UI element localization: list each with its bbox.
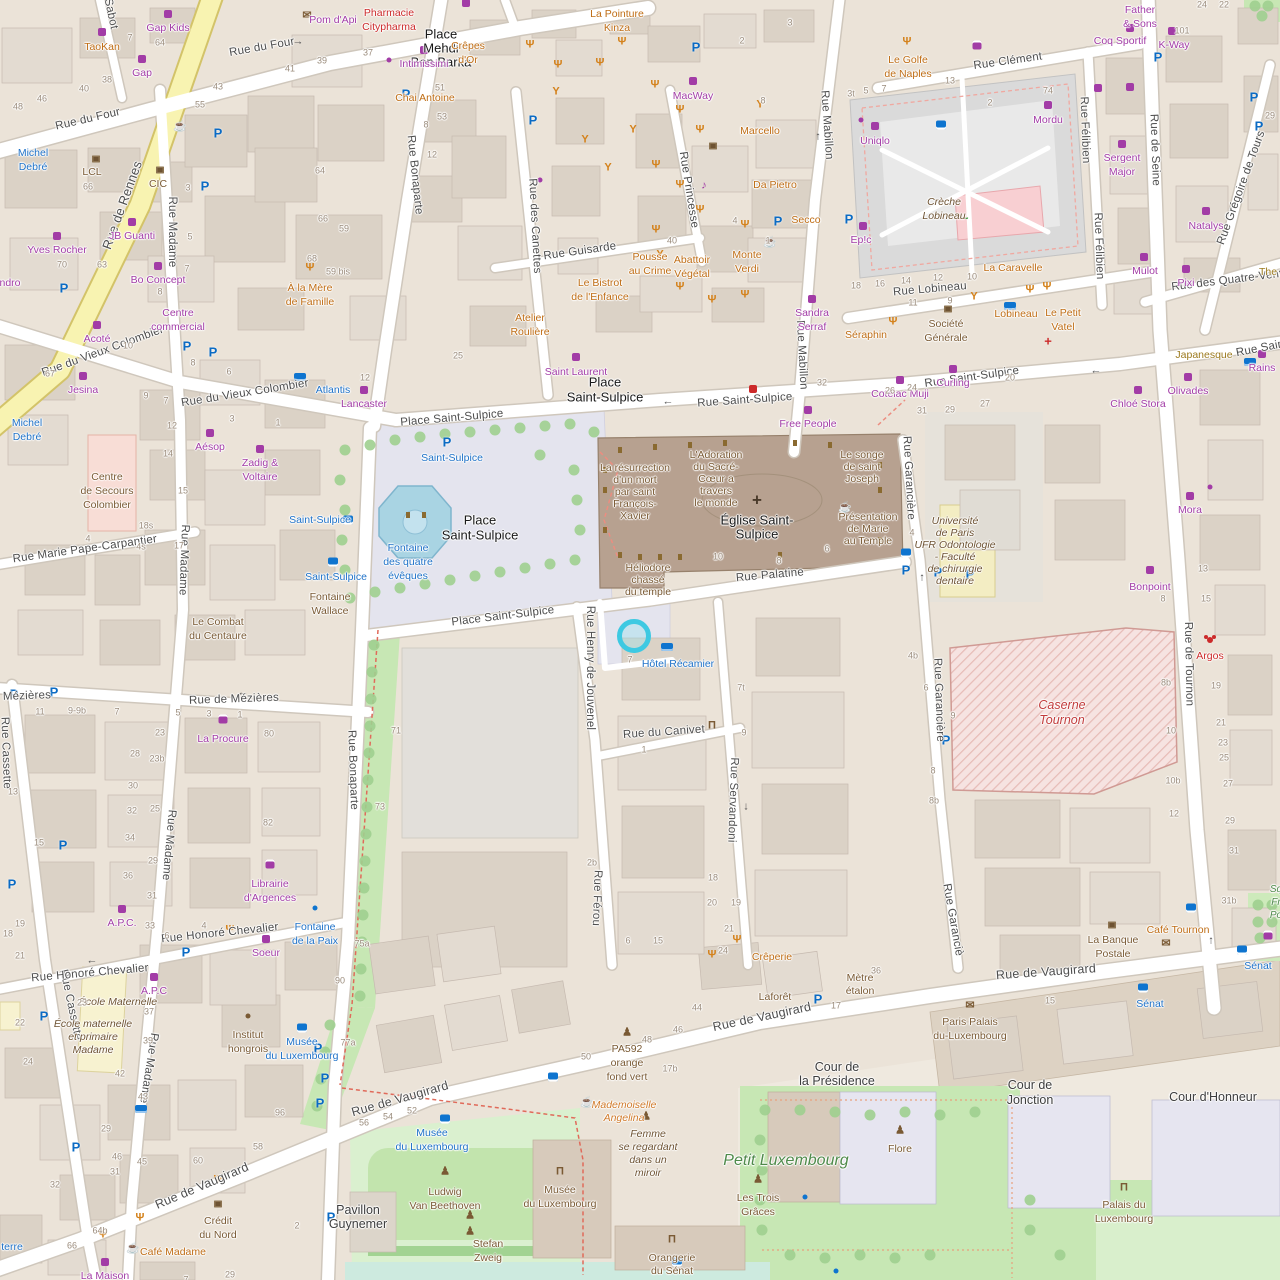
housenumber-label: 96	[275, 1109, 285, 1118]
poi-label: JB Guanti	[109, 231, 155, 242]
shop-icon[interactable]	[101, 1258, 109, 1266]
housenumber-label: 6	[226, 368, 231, 377]
poi-label: François-	[613, 499, 657, 510]
housenumber-label: 8	[157, 288, 162, 297]
restaurant-icon[interactable]: Ψ	[741, 220, 750, 231]
poi-label: Cour de	[815, 1061, 859, 1074]
housenumber-label: 31	[1229, 847, 1239, 856]
housenumber-label: 1	[641, 746, 646, 755]
restaurant-icon[interactable]: Ψ	[676, 282, 685, 293]
poi-label: Le Golfe	[888, 55, 928, 66]
restaurant-icon[interactable]: Ψ	[651, 80, 660, 91]
poi-label: de Marie	[848, 524, 889, 535]
poi-label: Roulière	[510, 327, 549, 338]
bar-icon[interactable]: Y	[604, 163, 611, 174]
tree	[390, 435, 401, 446]
poi-label: Université	[932, 516, 979, 527]
poi-label: La Pointure	[590, 9, 644, 20]
poi-label: UFR Odontologie	[914, 540, 995, 551]
museum-icon[interactable]: Π	[556, 1167, 564, 1178]
housenumber-label: 1	[237, 711, 242, 720]
poi-label: Centre	[162, 308, 194, 319]
parking-icon[interactable]: P	[59, 839, 68, 852]
tree	[520, 563, 531, 574]
tree	[865, 1110, 876, 1121]
housenumber-label: 25	[453, 352, 463, 361]
bookshop-icon[interactable]	[219, 715, 228, 724]
poi-label: Mètre	[847, 973, 874, 984]
poi-label: Stefan	[473, 1239, 503, 1250]
map-canvas[interactable]: PPPPPPPPPPPPPPPPPPPPPPPPPPPPPP✉✉✉ΠΠΠΠ♟♟♟…	[0, 0, 1280, 1280]
parking-icon[interactable]: P	[814, 993, 823, 1006]
poi-label: du temple	[625, 587, 671, 598]
restaurant-icon[interactable]: Ψ	[741, 290, 750, 301]
poi-label: Pixi	[1178, 278, 1195, 289]
parking-icon[interactable]: P	[902, 564, 911, 577]
housenumber-label: 39	[317, 57, 327, 66]
poi-label: Les Trois	[737, 1193, 780, 1204]
housenumber-label: 18s	[139, 522, 154, 531]
housenumber-label: 10	[123, 342, 133, 351]
bank-icon[interactable]	[709, 143, 717, 150]
poi-label: Mora	[1178, 505, 1202, 516]
tree	[540, 421, 551, 432]
fountain-icon[interactable]	[313, 906, 318, 911]
housenumber-label: 31	[147, 892, 157, 901]
cafe-icon[interactable]: ☕	[173, 122, 187, 133]
poi-dot-icon[interactable]	[1208, 485, 1213, 490]
shop-icon[interactable]	[1182, 265, 1190, 273]
art-shop-icon[interactable]	[246, 1014, 251, 1019]
bus-stop-icon[interactable]	[901, 549, 911, 558]
poi-label: Institut	[233, 1030, 264, 1041]
shop-icon[interactable]	[360, 386, 368, 394]
restaurant-icon[interactable]: Ψ	[708, 295, 717, 306]
poi-label: Orangerie	[649, 1253, 696, 1264]
shop-icon[interactable]	[949, 365, 957, 373]
housenumber-label: 4	[732, 217, 737, 226]
street-label: Rue Cassette	[0, 717, 12, 789]
housenumber-label: 17	[174, 542, 184, 551]
housenumber-label: 3t	[847, 90, 855, 99]
shop-icon[interactable]	[1202, 207, 1210, 215]
poi-label: au Temple	[844, 536, 892, 547]
tree	[795, 1105, 806, 1116]
housenumber-label: 32	[50, 1181, 60, 1190]
housenumber-label: 20	[1005, 374, 1015, 383]
restaurant-icon[interactable]: Ψ	[526, 40, 535, 51]
parking-icon[interactable]: P	[1250, 91, 1259, 104]
poi-label: Paris Palais	[942, 1017, 997, 1028]
poi-label: Natalys	[1188, 221, 1223, 232]
shop-icon[interactable]	[1118, 140, 1126, 148]
housenumber-label: 39	[143, 1037, 153, 1046]
housenumber-label: 3	[206, 710, 211, 719]
poi-label: Free People	[779, 419, 836, 430]
housenumber-label: 12	[427, 151, 437, 160]
bar-icon[interactable]: Y	[552, 87, 559, 98]
poi-label: Gap	[132, 68, 152, 79]
tree	[1263, 1, 1274, 12]
housenumber-label: 50	[581, 1053, 591, 1062]
parking-icon[interactable]: P	[316, 1097, 325, 1110]
shop-icon[interactable]	[128, 218, 136, 226]
shop-icon[interactable]	[154, 262, 162, 270]
housenumber-label: 29	[1225, 817, 1235, 826]
housenumber-label: 19	[15, 920, 25, 929]
housenumber-label: 29	[225, 1271, 235, 1280]
restaurant-icon[interactable]: Ψ	[554, 60, 563, 71]
housenumber-label: 2	[294, 1222, 299, 1231]
poi-label: Pavillon	[336, 1204, 380, 1217]
housenumber-label: 21	[15, 952, 25, 961]
music-shop-icon[interactable]: ♪	[701, 181, 707, 192]
chapel-mark	[603, 527, 607, 533]
chapel-mark	[678, 554, 682, 560]
poi-label: étalon	[846, 986, 875, 997]
restaurant-icon[interactable]: Ψ	[903, 37, 912, 48]
poi-label: Lobineau	[922, 211, 965, 222]
poi-label: Cœur a	[698, 474, 734, 485]
poi-label: de Naples	[884, 69, 931, 80]
kiosk-icon[interactable]	[1264, 931, 1273, 940]
parking-icon[interactable]: P	[321, 1072, 330, 1085]
restaurant-icon[interactable]: Ψ	[676, 105, 685, 116]
bank-icon[interactable]	[92, 156, 100, 163]
restaurant-icon[interactable]: Ψ	[306, 263, 315, 274]
bar-icon[interactable]: Y	[970, 292, 977, 303]
hotel-icon[interactable]	[661, 643, 673, 651]
shop-icon[interactable]	[1134, 386, 1142, 394]
fountain-icon[interactable]	[834, 1269, 839, 1274]
poi-label: Fr	[1271, 898, 1280, 908]
poi-label: Cotélac Muji	[871, 389, 929, 400]
poi-label: Hôtel Récamier	[642, 659, 714, 670]
poi-label: du Nord	[199, 1230, 236, 1241]
bookshop-icon[interactable]	[973, 41, 982, 50]
poi-label: Végétal	[674, 269, 710, 280]
poi-dot-icon[interactable]	[859, 118, 864, 123]
tree	[365, 721, 376, 732]
bank-icon[interactable]	[156, 167, 164, 174]
statue-icon[interactable]: ♟	[622, 1028, 632, 1039]
housenumber-label: 46	[37, 95, 47, 104]
parking-icon[interactable]: P	[40, 1010, 49, 1023]
parking-icon[interactable]: P	[692, 41, 701, 54]
statue-icon[interactable]: ♟	[465, 1211, 475, 1222]
housenumber-label: 6	[164, 932, 169, 941]
poi-label: Argos	[1196, 651, 1223, 662]
fountain-icon[interactable]	[803, 1195, 808, 1200]
poi-label: Aésop	[195, 442, 225, 453]
poi-label: Le Bistrot	[578, 278, 622, 289]
poi-label: Serraf	[798, 322, 827, 333]
poi-label: K-Way	[1158, 40, 1189, 51]
shop-icon[interactable]	[871, 122, 879, 130]
poi-label: Angelina	[604, 1113, 645, 1124]
poi-label: Guynemer	[329, 1218, 387, 1231]
poi-label: Van Beethoven	[409, 1201, 480, 1212]
church-cross-icon[interactable]: +	[752, 492, 762, 509]
poi-label: La Procure	[197, 734, 248, 745]
housenumber-label: 74	[1043, 87, 1053, 96]
poi-label: Chloé Stora	[1110, 399, 1165, 410]
poi-label: Da Pietro	[753, 180, 797, 191]
tree	[361, 829, 372, 840]
housenumber-label: 7t	[737, 684, 745, 693]
housenumber-label: 24	[907, 384, 917, 393]
poi-label: miroir	[635, 1168, 661, 1179]
shop-icon[interactable]	[138, 55, 146, 63]
housenumber-label: 42	[115, 1070, 125, 1079]
parking-icon[interactable]: P	[845, 213, 854, 226]
shop-icon[interactable]	[859, 222, 867, 230]
restaurant-icon[interactable]: Ψ	[733, 935, 742, 946]
pet-shop-icon[interactable]	[1207, 637, 1213, 643]
shop-icon[interactable]	[1184, 373, 1192, 381]
shop-icon[interactable]	[79, 372, 87, 380]
parking-icon[interactable]: P	[182, 946, 191, 959]
fire-hydrant-icon[interactable]	[749, 385, 757, 393]
poi-label: Fontaine	[388, 543, 429, 554]
street-label: Rue Félibien	[1077, 96, 1091, 163]
bus-stop-icon[interactable]	[297, 1024, 307, 1033]
housenumber-label: 15	[1201, 595, 1211, 604]
shop-icon[interactable]	[1186, 492, 1194, 500]
poi-label: Gap Kids	[146, 23, 189, 34]
housenumber-label: 90	[335, 977, 345, 986]
housenumber-label: 16	[875, 280, 885, 289]
tree	[465, 427, 476, 438]
housenumber-label: 37	[363, 49, 373, 58]
bus-stop-icon[interactable]	[936, 121, 946, 130]
pharmacy-icon[interactable]: +	[1044, 335, 1052, 348]
shop-icon[interactable]	[206, 429, 214, 437]
poi-label: Crêperie	[752, 952, 792, 963]
taxi-icon[interactable]	[1186, 904, 1196, 913]
museum-icon[interactable]: Π	[708, 721, 716, 732]
housenumber-label: 70	[57, 261, 67, 270]
poi-label: Acoté	[84, 334, 111, 345]
poi-label: Wallace	[312, 606, 349, 617]
street-label: Rue de Seine	[1147, 114, 1161, 186]
tree	[369, 640, 380, 651]
parking-icon[interactable]: P	[1154, 51, 1163, 64]
poi-label: travers	[700, 486, 732, 497]
shop-icon[interactable]	[896, 376, 904, 384]
poi-label: Musée	[544, 1185, 576, 1196]
shop-icon[interactable]	[93, 321, 101, 329]
restaurant-icon[interactable]: Ψ	[1026, 285, 1035, 296]
poi-label: Curling	[936, 378, 969, 389]
housenumber-label: 53	[437, 113, 447, 122]
poi-label: Sénat	[1136, 999, 1163, 1010]
restaurant-icon[interactable]: Ψ	[696, 125, 705, 136]
parking-icon[interactable]: P	[529, 114, 538, 127]
housenumber-label: 8	[423, 121, 428, 130]
parking-icon[interactable]: P	[201, 180, 210, 193]
restaurant-icon[interactable]: Ψ	[708, 950, 717, 961]
poi-label: Sergent	[1104, 153, 1141, 164]
shop-icon[interactable]	[1094, 84, 1102, 92]
tree	[470, 571, 481, 582]
poi-label: Cour de	[1008, 1079, 1052, 1092]
statue-icon[interactable]: ♟	[895, 1126, 905, 1137]
shop-icon[interactable]	[572, 353, 580, 361]
tree	[589, 427, 600, 438]
shop-icon[interactable]	[98, 28, 106, 36]
housenumber-label: 41	[285, 65, 295, 74]
housenumber-label: 18	[851, 282, 861, 291]
chapel-mark	[878, 487, 882, 493]
chapel-mark	[658, 554, 662, 560]
parking-icon[interactable]: P	[60, 282, 69, 295]
poi-label: Le Petit	[1045, 308, 1081, 319]
poi-label: Sandra	[795, 308, 829, 319]
tree	[935, 1110, 946, 1121]
housenumber-label: 40	[79, 85, 89, 94]
shop-icon[interactable]	[150, 973, 158, 981]
restaurant-icon[interactable]: Ψ	[136, 1213, 145, 1224]
housenumber-label: 6	[824, 545, 829, 554]
shop-icon[interactable]	[262, 935, 270, 943]
oneway-arrow: ↑	[919, 573, 925, 584]
tree	[325, 1020, 336, 1031]
tree	[515, 423, 526, 434]
housenumber-label: 8	[760, 97, 765, 106]
bar-icon[interactable]: Y	[629, 125, 636, 136]
housenumber-label: 26	[885, 387, 895, 396]
cafe-icon[interactable]: ☕	[126, 1244, 140, 1255]
poi-label: de Paris	[936, 528, 975, 539]
restaurant-icon[interactable]: Ψ	[652, 225, 661, 236]
poi-dot-icon[interactable]	[387, 58, 392, 63]
parking-icon[interactable]: P	[209, 346, 218, 359]
street-label: Rue Madame	[165, 196, 177, 267]
bookshop-icon[interactable]	[266, 860, 275, 869]
poi-label: Place	[425, 28, 458, 41]
museum-icon[interactable]: Π	[668, 1235, 676, 1246]
housenumber-label: 68	[307, 255, 317, 264]
poi-label: La Caravelle	[984, 263, 1043, 274]
shop-icon[interactable]	[462, 0, 470, 7]
statue-icon[interactable]: ♟	[465, 1227, 475, 1238]
bank-icon[interactable]	[1108, 922, 1116, 929]
shop-icon[interactable]	[804, 406, 812, 414]
shop-icon[interactable]	[689, 77, 697, 85]
housenumber-label: 71	[391, 727, 401, 736]
housenumber-label: 8b	[1161, 679, 1171, 688]
parking-icon[interactable]: P	[774, 215, 783, 228]
parking-icon[interactable]: P	[72, 1141, 81, 1154]
restaurant-icon[interactable]: Ψ	[889, 317, 898, 328]
shop-icon[interactable]	[256, 445, 264, 453]
tree	[1250, 1, 1261, 12]
bus-stop-icon[interactable]	[328, 558, 338, 567]
shop-icon[interactable]	[118, 905, 126, 913]
restaurant-icon[interactable]: Ψ	[1043, 282, 1052, 293]
action-highlight-circle[interactable]	[617, 619, 651, 653]
poi-label: Le songe	[840, 450, 883, 461]
housenumber-label: 56	[359, 1119, 369, 1128]
bus-stop-icon[interactable]	[440, 1115, 450, 1124]
poi-label: TaoKan	[84, 42, 120, 53]
shop-icon[interactable]	[53, 232, 61, 240]
restaurant-icon[interactable]: Ψ	[618, 37, 627, 48]
bus-stop-icon[interactable]	[548, 1073, 558, 1082]
poi-label: orange	[611, 1058, 644, 1069]
housenumber-label: 24	[1197, 1, 1207, 10]
poi-label: Rains	[1249, 363, 1276, 374]
street-label: e Mézières	[0, 690, 51, 704]
poi-label: Pousse	[632, 252, 667, 263]
tree	[890, 1253, 901, 1264]
housenumber-label: 24	[718, 947, 728, 956]
poi-label: du Centaure	[189, 631, 247, 642]
post-icon[interactable]: ✉	[965, 1001, 974, 1012]
shop-icon[interactable]	[1126, 83, 1134, 91]
tree	[569, 465, 580, 476]
statue-icon[interactable]: ♟	[753, 1175, 763, 1186]
statue-icon[interactable]: ♟	[440, 1167, 450, 1178]
poi-label: Xavier	[620, 511, 650, 522]
housenumber-label: 8b	[929, 797, 939, 806]
poi-label: Flore	[888, 1144, 912, 1155]
poi-label: de Famille	[286, 297, 334, 308]
bank-icon[interactable]	[214, 1201, 222, 1208]
tree	[785, 1250, 796, 1261]
parking-icon[interactable]: P	[183, 340, 192, 353]
tree	[570, 555, 581, 566]
parking-icon[interactable]: P	[8, 878, 17, 891]
poi-label: À la Mère	[288, 283, 333, 294]
housenumber-label: 54	[383, 1113, 393, 1122]
poi-label: Vatel	[1051, 322, 1074, 333]
tree	[535, 450, 546, 461]
restaurant-icon[interactable]: Ψ	[596, 58, 605, 69]
parking-icon[interactable]: P	[214, 127, 223, 140]
bank-icon[interactable]	[944, 306, 952, 313]
parking-icon[interactable]: P	[443, 436, 452, 449]
hotel-icon[interactable]	[135, 1105, 147, 1113]
poi-label: Pom d'Api	[309, 15, 357, 26]
housenumber-label: 24	[23, 1058, 33, 1067]
shop-icon[interactable]	[1140, 253, 1148, 261]
poi-label: Séraphin	[845, 330, 887, 341]
housenumber-label: 66	[83, 183, 93, 192]
post-icon[interactable]: ✉	[1161, 939, 1170, 950]
poi-label: Crêpes	[451, 41, 485, 52]
poi-label: Fontaine	[295, 922, 336, 933]
shop-icon[interactable]	[808, 295, 816, 303]
bar-icon[interactable]: Y	[581, 135, 588, 146]
tree	[367, 667, 378, 678]
shop-icon[interactable]	[1044, 101, 1052, 109]
shop-icon[interactable]	[164, 10, 172, 18]
chapel-mark	[723, 440, 727, 446]
housenumber-label: 15	[653, 937, 663, 946]
restaurant-icon[interactable]: Ψ	[652, 160, 661, 171]
castle-icon[interactable]: Π	[1120, 1183, 1128, 1194]
bus-stop-icon[interactable]	[1138, 984, 1148, 993]
chapel-mark	[422, 512, 426, 518]
poi-label: & Sons	[1123, 19, 1157, 30]
shop-icon[interactable]	[1146, 566, 1154, 574]
poi-label: Major	[1109, 167, 1135, 178]
poi-label: Sq	[1270, 885, 1280, 895]
bus-stop-icon[interactable]	[1237, 946, 1247, 955]
housenumber-label: 12	[933, 274, 943, 283]
